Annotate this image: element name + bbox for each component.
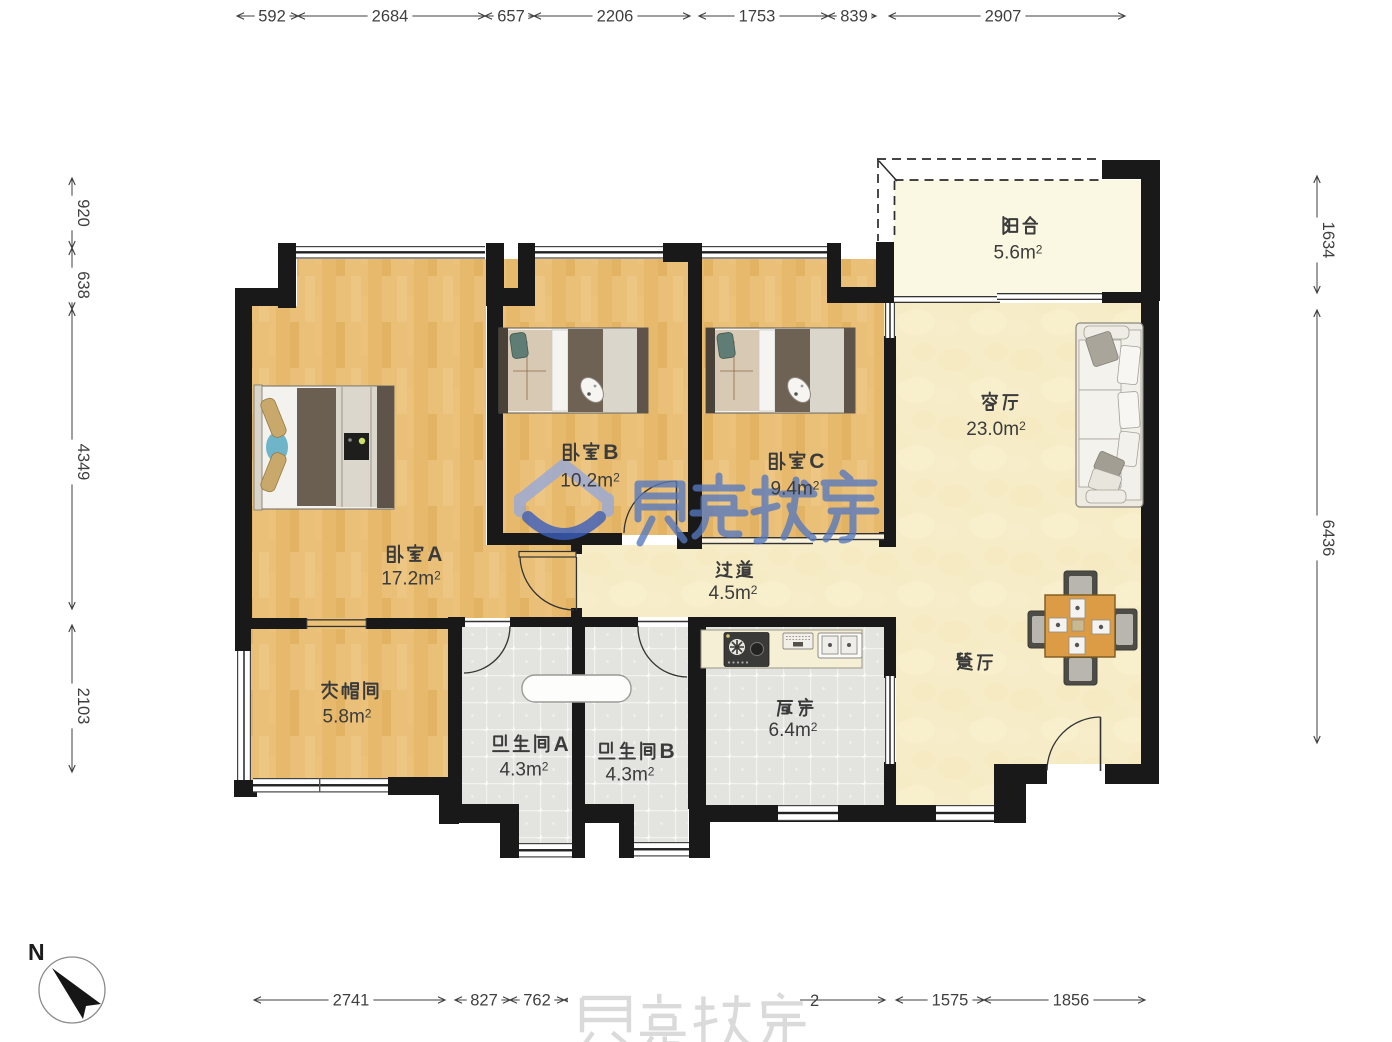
svg-text:762: 762: [523, 992, 551, 1010]
svg-text:B: B: [603, 441, 618, 464]
svg-text:4.3m2: 4.3m2: [500, 760, 549, 781]
svg-text:6.4m2: 6.4m2: [769, 720, 818, 741]
svg-text:4.5m2: 4.5m2: [709, 583, 758, 604]
svg-text:4.3m2: 4.3m2: [606, 765, 655, 786]
svg-text:839: 839: [840, 8, 868, 26]
svg-text:4349: 4349: [74, 444, 92, 481]
svg-text:A: A: [554, 733, 569, 756]
svg-text:10.2m2: 10.2m2: [560, 471, 620, 492]
svg-text:2907: 2907: [985, 8, 1022, 26]
svg-text:1634: 1634: [1319, 222, 1337, 259]
svg-text:A: A: [427, 543, 442, 566]
svg-text:5.8m2: 5.8m2: [323, 707, 372, 728]
svg-text:638: 638: [74, 271, 92, 299]
svg-text:5.6m2: 5.6m2: [994, 243, 1043, 264]
svg-text:9.4m2: 9.4m2: [771, 479, 820, 500]
svg-text:827: 827: [470, 992, 498, 1010]
svg-text:657: 657: [497, 8, 525, 26]
svg-text:920: 920: [74, 199, 92, 227]
svg-text:B: B: [660, 740, 675, 763]
svg-text:6436: 6436: [1319, 520, 1337, 557]
svg-text:592: 592: [258, 8, 286, 26]
svg-text:C: C: [809, 450, 824, 473]
svg-text:N: N: [28, 939, 45, 965]
svg-text:1575: 1575: [932, 992, 969, 1010]
svg-text:1856: 1856: [1053, 992, 1090, 1010]
svg-text:2: 2: [810, 992, 819, 1010]
svg-text:23.0m2: 23.0m2: [966, 419, 1026, 440]
svg-text:2741: 2741: [333, 992, 370, 1010]
svg-text:17.2m2: 17.2m2: [381, 569, 441, 590]
svg-text:2103: 2103: [74, 688, 92, 725]
svg-text:2206: 2206: [597, 8, 634, 26]
svg-text:1753: 1753: [739, 8, 776, 26]
svg-text:2684: 2684: [372, 8, 409, 26]
